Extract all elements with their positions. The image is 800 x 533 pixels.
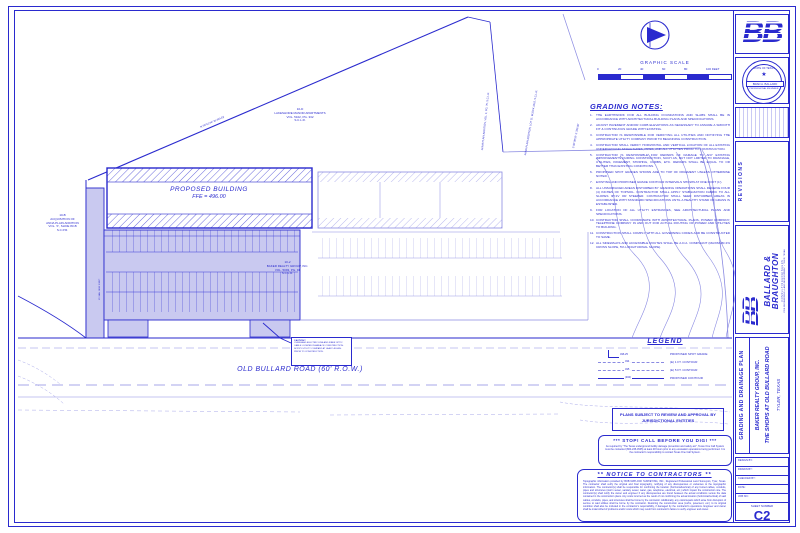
- info-row-date: DATE:: [736, 485, 788, 494]
- subject-parcel-label: 10-2 BAKER REALTY GROUP, INC. VOL. 5093,…: [235, 261, 340, 276]
- project-location: TYLER, TEXAS: [774, 340, 784, 450]
- contour-1ft-line-icon: [598, 362, 664, 363]
- project-info: BAKER REALTY GROUP, INC. THE SHOPS AT OL…: [753, 340, 784, 450]
- legend-item-spot-grade: 496.25 PROPOSED SPOT GRADE: [598, 350, 732, 358]
- scale-bar: [598, 74, 732, 80]
- seal-state: STATE OF TEXAS: [743, 67, 785, 70]
- seal-title: PROFESSIONAL ENGINEER: [743, 88, 785, 90]
- west-parcel-label: 10-B ACQUISITION OF ANNA PLAIN ADDITION …: [25, 214, 100, 233]
- easement-label: 15' SAN. SEW. ESMT.: [99, 278, 102, 300]
- info-row-drawn-by: DRAWN BY:: [736, 467, 788, 476]
- grading-note: 11.CONSTRUCTION SHALL COMPLY WITH ALL GO…: [590, 232, 730, 240]
- grading-note: 10.CONTRACTOR SHALL COORDINATE WITH ARCH…: [590, 219, 730, 231]
- notice-title: ** NOTICE TO CONTRACTORS **: [583, 472, 726, 478]
- grading-note: 12.ALL SIDEWALKS AND ACCESSIBLE ROUTES S…: [590, 242, 730, 250]
- plan-sheet: PROPOSED BUILDING FFE = 496.00 OLD BULLA…: [0, 0, 800, 533]
- plans-subject-text: PLANS SUBJECT TO REVIEW AND APPROVAL BY …: [617, 412, 719, 424]
- caution-callout: CAUTION!! OVERHEAD ELECTRIC LINE AND FIB…: [291, 337, 352, 366]
- notice-body: Topographic information provided by BOB …: [583, 480, 726, 512]
- schedule-stripe-box: [735, 107, 789, 138]
- grading-note: 4.CONTRACTOR SHALL VERIFY HORIZONTAL AND…: [590, 144, 730, 152]
- building-ffe: FFE = 496.00: [139, 194, 279, 200]
- contour-5ft-line-icon: [598, 370, 664, 371]
- scale-tick-20: 20: [618, 67, 621, 71]
- info-row-design-by: DESIGN BY:: [736, 458, 788, 467]
- firm-name: BALLARD & BRAUGHTON: [764, 230, 780, 332]
- firm-details: C O N S U L T I N G E N G I N E E R S CI…: [781, 230, 787, 332]
- revisions-title: REVISIONS: [738, 144, 744, 218]
- grading-note: 2.ADJUST PAVEMENT AND/OR CURB ELEVATIONS…: [590, 124, 730, 132]
- legend: LEGEND 496.25 PROPOSED SPOT GRADE 494 (E…: [598, 338, 732, 382]
- plans-subject-box: PLANS SUBJECT TO REVIEW AND APPROVAL BY …: [612, 408, 724, 431]
- legend-item-1ft-contour: 494 (E) 1 FT. CONTOUR: [598, 358, 732, 366]
- sheet-number: C2: [736, 508, 788, 523]
- graphic-scale-title: GRAPHIC SCALE: [630, 60, 700, 65]
- proposed-building-label: PROPOSED BUILDING FFE = 496.00: [139, 186, 279, 200]
- seal-box: STATE OF TEXAS ★ BRAD A. BALLARD PROFESS…: [735, 57, 789, 104]
- grading-note: 1.THE EARTHWORK FOR ALL BUILDING FOUNDAT…: [590, 114, 730, 122]
- caution-text: OVERHEAD ELECTRIC LINE AND FIBER OPTIC C…: [294, 342, 349, 353]
- scale-tick-40: 40: [640, 67, 643, 71]
- grading-note: 5.CONTRACTOR IS RESPONSIBLE FOR REPAIRS …: [590, 154, 730, 169]
- grading-note: 3.CONTRACTOR IS RESPONSIBLE FOR VERIFYIN…: [590, 134, 730, 142]
- legend-item-5ft-contour: 495 (E) 5 FT. CONTOUR: [598, 366, 732, 374]
- info-box: DESIGN BY: DRAWN BY: CHECKED BY: DATE: J…: [735, 457, 789, 521]
- info-row-checked-by: CHECKED BY:: [736, 476, 788, 485]
- legend-item-proposed-contour: (490) PROPOSED CONTOUR: [598, 374, 732, 382]
- sheet-title: GRADING AND DRAINAGE PLAN: [739, 340, 745, 450]
- bb-logo-small: BB: [740, 294, 762, 330]
- notice-to-contractors-box: ** NOTICE TO CONTRACTORS ** Topographic …: [577, 469, 732, 522]
- scale-tick-80: 80: [684, 67, 687, 71]
- logo-box: BB: [735, 14, 789, 54]
- grading-note: 9.FOR LOCATION OF ALL UTILITY ENTRANCES,…: [590, 209, 730, 217]
- project-name: THE SHOPS AT OLD BULLARD ROAD: [763, 340, 774, 450]
- seal-star-icon: ★: [743, 71, 785, 78]
- stop-call-box: *** STOP! CALL BEFORE YOU DIG! *** As re…: [598, 435, 732, 466]
- revisions-box: REVISIONS: [735, 141, 789, 222]
- client-name: BAKER REALTY GROUP, INC.: [753, 340, 763, 450]
- scale-tick-60: 60: [662, 67, 665, 71]
- pe-seal: STATE OF TEXAS ★ BRAD A. BALLARD PROFESS…: [742, 60, 786, 104]
- spot-grade-icon: [608, 350, 619, 358]
- seal-name: BRAD A. BALLARD: [746, 81, 784, 87]
- grading-note: 8.ALL UNSURFACED AREAS DISTURBED BY GRAD…: [590, 187, 730, 206]
- stop-call-title: *** STOP! CALL BEFORE YOU DIG! ***: [603, 438, 727, 443]
- building-name: PROPOSED BUILDING: [139, 186, 279, 193]
- firm-box: BB BALLARD & BRAUGHTON C O N S U L T I N…: [735, 225, 789, 334]
- stop-call-body: As required by "The Texas underground fa…: [603, 445, 727, 455]
- grading-notes-title: GRADING NOTES:: [590, 102, 730, 111]
- road-label: OLD BULLARD ROAD (60' R.O.W.): [150, 366, 450, 373]
- apartments-parcel-label: 10-D LAKESHORE MANOR APARTMENTS VOL. 510…: [240, 108, 360, 123]
- project-box: GRADING AND DRAINAGE PLAN BAKER REALTY G…: [735, 337, 789, 454]
- legend-title: LEGEND: [598, 338, 732, 345]
- info-row-job-no: JOB NO.:: [736, 494, 788, 503]
- scale-tick-0: 0: [597, 67, 599, 71]
- grading-notes: GRADING NOTES: 1.THE EARTHWORK FOR ALL B…: [590, 102, 730, 252]
- grading-note: 6.PROPOSED SPOT GRADES SHOWN ARE TO TOP …: [590, 171, 730, 179]
- scale-tick-100: 100 FEET: [706, 67, 720, 71]
- grading-note: 7.EXISTING AND PROPOSED GRADE CONTOUR IN…: [590, 181, 730, 185]
- bb-logo: BB: [736, 18, 788, 48]
